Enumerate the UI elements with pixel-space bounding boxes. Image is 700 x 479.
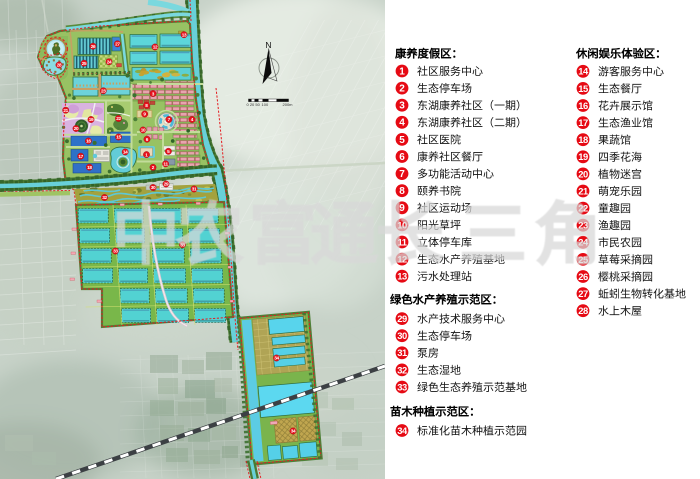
svg-text:26: 26	[91, 44, 96, 49]
svg-text:28: 28	[57, 63, 62, 68]
svg-text:18: 18	[87, 165, 92, 170]
svg-text:17: 17	[78, 154, 83, 159]
svg-text:1: 1	[145, 152, 148, 157]
svg-text:1: 1	[399, 66, 405, 77]
svg-text:34: 34	[397, 425, 408, 436]
svg-text:15: 15	[578, 83, 588, 94]
svg-text:31: 31	[397, 347, 407, 358]
svg-text:20: 20	[578, 168, 588, 179]
svg-text:12: 12	[153, 45, 158, 50]
svg-text:27: 27	[115, 41, 120, 46]
svg-text:21: 21	[578, 185, 588, 196]
svg-text:8: 8	[399, 186, 405, 197]
svg-text:22: 22	[116, 116, 121, 121]
svg-text:10: 10	[141, 128, 146, 133]
svg-text:2: 2	[152, 165, 155, 170]
svg-text:3: 3	[399, 101, 405, 112]
svg-text:11: 11	[163, 161, 168, 166]
svg-text:16: 16	[578, 100, 588, 111]
svg-text:30: 30	[397, 330, 407, 341]
svg-text:19: 19	[578, 151, 588, 162]
svg-text:14: 14	[578, 66, 589, 77]
svg-text:4: 4	[399, 118, 405, 129]
svg-text:34: 34	[274, 356, 279, 361]
svg-text:20: 20	[74, 126, 79, 131]
svg-text:5: 5	[167, 149, 170, 154]
svg-text:16: 16	[86, 139, 91, 144]
svg-text:100: 100	[262, 102, 269, 107]
svg-text:14: 14	[123, 150, 128, 155]
svg-text:21: 21	[63, 108, 68, 113]
svg-text:7: 7	[399, 169, 405, 180]
svg-text:34: 34	[291, 429, 296, 434]
svg-text:29: 29	[164, 182, 169, 187]
svg-text:30: 30	[151, 185, 156, 190]
svg-text:33: 33	[113, 249, 118, 254]
svg-text:13: 13	[397, 271, 407, 282]
svg-text:6: 6	[146, 137, 149, 142]
svg-text:26: 26	[578, 271, 588, 282]
svg-text:32: 32	[102, 195, 107, 200]
svg-text:27: 27	[578, 288, 588, 299]
svg-text:9: 9	[143, 112, 146, 117]
svg-text:7: 7	[168, 117, 171, 122]
svg-text:28: 28	[578, 305, 588, 316]
svg-text:0 20 50: 0 20 50	[247, 102, 261, 107]
svg-text:32: 32	[397, 364, 407, 375]
svg-text:24: 24	[107, 59, 112, 64]
svg-text:3: 3	[152, 91, 155, 96]
svg-text:18: 18	[578, 134, 588, 145]
svg-text:23: 23	[101, 88, 106, 93]
svg-text:4: 4	[191, 117, 194, 122]
svg-text:25: 25	[82, 61, 87, 66]
svg-text:8: 8	[145, 103, 148, 108]
svg-text:5: 5	[399, 135, 405, 146]
svg-text:17: 17	[578, 117, 588, 128]
svg-text:9: 9	[399, 203, 405, 214]
svg-text:19: 19	[89, 117, 94, 122]
svg-text:29: 29	[397, 313, 407, 324]
svg-text:31: 31	[192, 187, 197, 192]
svg-text:13: 13	[182, 32, 187, 37]
svg-text:N: N	[265, 40, 271, 50]
svg-text:2: 2	[399, 84, 405, 95]
svg-text:6: 6	[399, 152, 405, 163]
svg-text:200m: 200m	[283, 102, 294, 107]
svg-text:15: 15	[116, 135, 121, 140]
svg-text:33: 33	[397, 381, 407, 392]
